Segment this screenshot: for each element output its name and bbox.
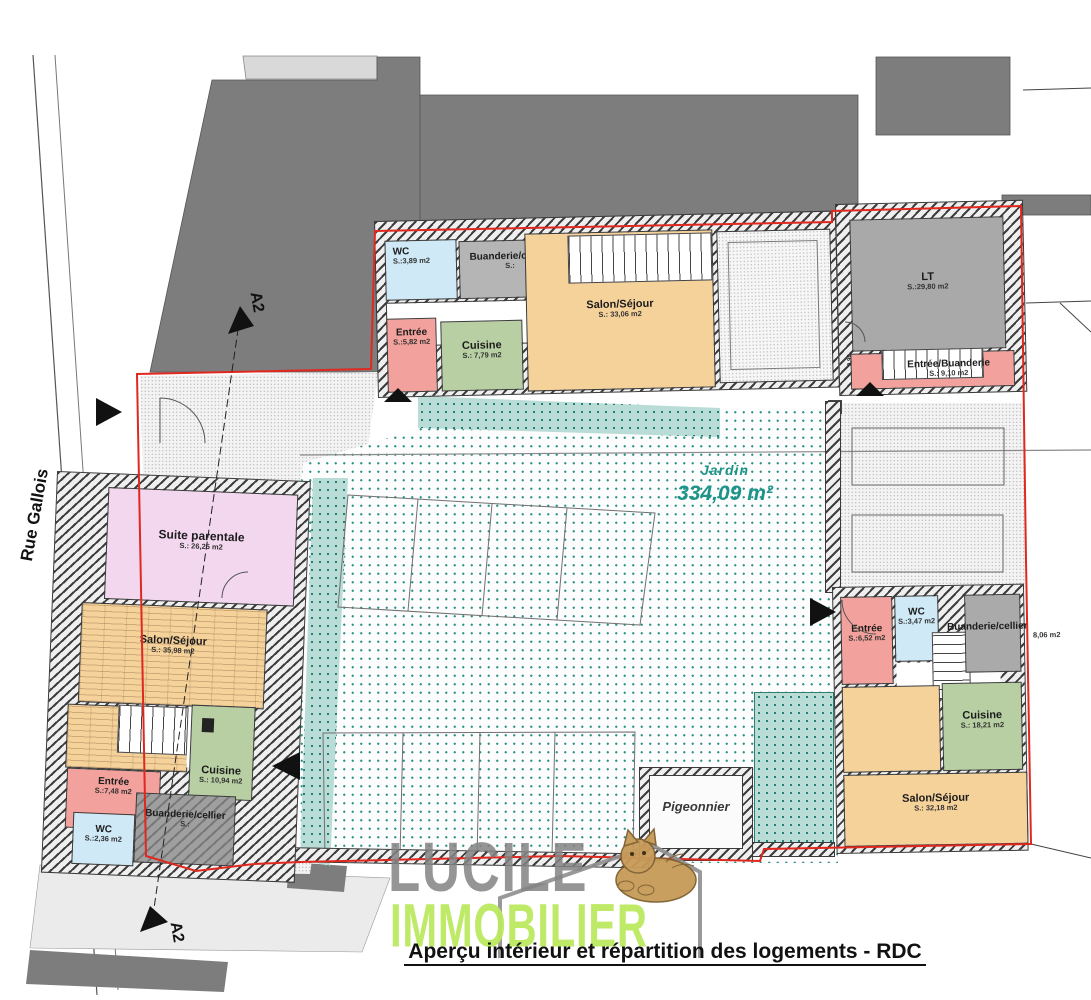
building-unit4: Entrée S.:6,52 m2 WC S.:3,47 m2 Buanderi… bbox=[833, 585, 1028, 853]
garden-name: Jardin bbox=[630, 462, 820, 478]
stairs-u3 bbox=[117, 705, 189, 756]
caption: Aperçu intérieur et répartition des loge… bbox=[340, 940, 990, 964]
room-u4-entree: Entrée S.:6,52 m2 bbox=[841, 597, 892, 684]
room-u4-upper-salon bbox=[843, 686, 940, 772]
room-u1-salon: Salon/Séjour S.: 33,06 m2 bbox=[525, 230, 714, 390]
wall-courtyard-left bbox=[826, 402, 840, 592]
caption-text: Aperçu intérieur et répartition des loge… bbox=[404, 940, 925, 966]
room-u3-suite: Suite parentale S.: 26,25 m2 bbox=[105, 488, 297, 605]
building-unit3: Suite parentale S.: 26,25 m2 Salon/Séjou… bbox=[42, 472, 310, 882]
room-u2-entree-buanderie: Entrée/Buanderie S.: 9,10 m2 0,90 bbox=[851, 351, 1014, 389]
garden-area: 334,09 m² bbox=[630, 482, 820, 506]
stairs-u1 bbox=[567, 232, 712, 283]
room-u1-cuisine: Cuisine S.: 7,79 m2 bbox=[441, 321, 523, 391]
garden-parcels-top bbox=[338, 495, 655, 625]
room-u4-cuisine: Cuisine S.: 18,21 m2 bbox=[943, 683, 1022, 770]
stairs-u2 bbox=[881, 348, 984, 380]
court-u1-patio bbox=[717, 230, 832, 383]
room-u1-entree: Entrée S.:5,82 m2 bbox=[387, 319, 437, 392]
room-u3-buanderie: Buanderie/cellier S.: bbox=[134, 793, 235, 865]
garden-label: Jardin 334,09 m² bbox=[630, 462, 820, 506]
room-u4-salon: Salon/Séjour S.: 32,18 m2 bbox=[844, 773, 1027, 846]
building-pigeonnier: Pigeonnier bbox=[640, 768, 752, 860]
wall-right-of-pigeonnier bbox=[752, 843, 834, 856]
building-unit2: LT S.:29,80 m2 Entrée/Buanderie S.: 9,10… bbox=[836, 201, 1026, 395]
room-pigeonnier: Pigeonnier bbox=[650, 776, 742, 848]
courtyard-rect-1 bbox=[852, 428, 1004, 485]
room-u1-wc: WC S.:3,89 m2 bbox=[385, 240, 456, 300]
stove-icon bbox=[202, 718, 215, 732]
courtyard-rect-2 bbox=[852, 515, 1003, 572]
dimension-label: 0,90 bbox=[847, 351, 854, 369]
building-unit1: WC S.:3,89 m2 Buanderie/cellier S.: Entr… bbox=[375, 212, 839, 397]
patio-rect bbox=[728, 240, 821, 370]
room-u3-cuisine: Cuisine S.: 10,94 m2 bbox=[189, 706, 255, 800]
room-u2-lt: LT S.:29,80 m2 bbox=[850, 217, 1005, 350]
room-u3-salon: Salon/Séjour S.: 35,98 m2 bbox=[79, 603, 267, 708]
floor-plan-page: { "caption": "Aperçu intérieur et répart… bbox=[0, 0, 1091, 1000]
room-u4-buanderie: Buanderie/cellier 8,06 m2 bbox=[965, 595, 1020, 672]
site-grid-line bbox=[300, 450, 1091, 455]
room-u3-wc: WC S.:2,36 m2 bbox=[72, 813, 134, 865]
